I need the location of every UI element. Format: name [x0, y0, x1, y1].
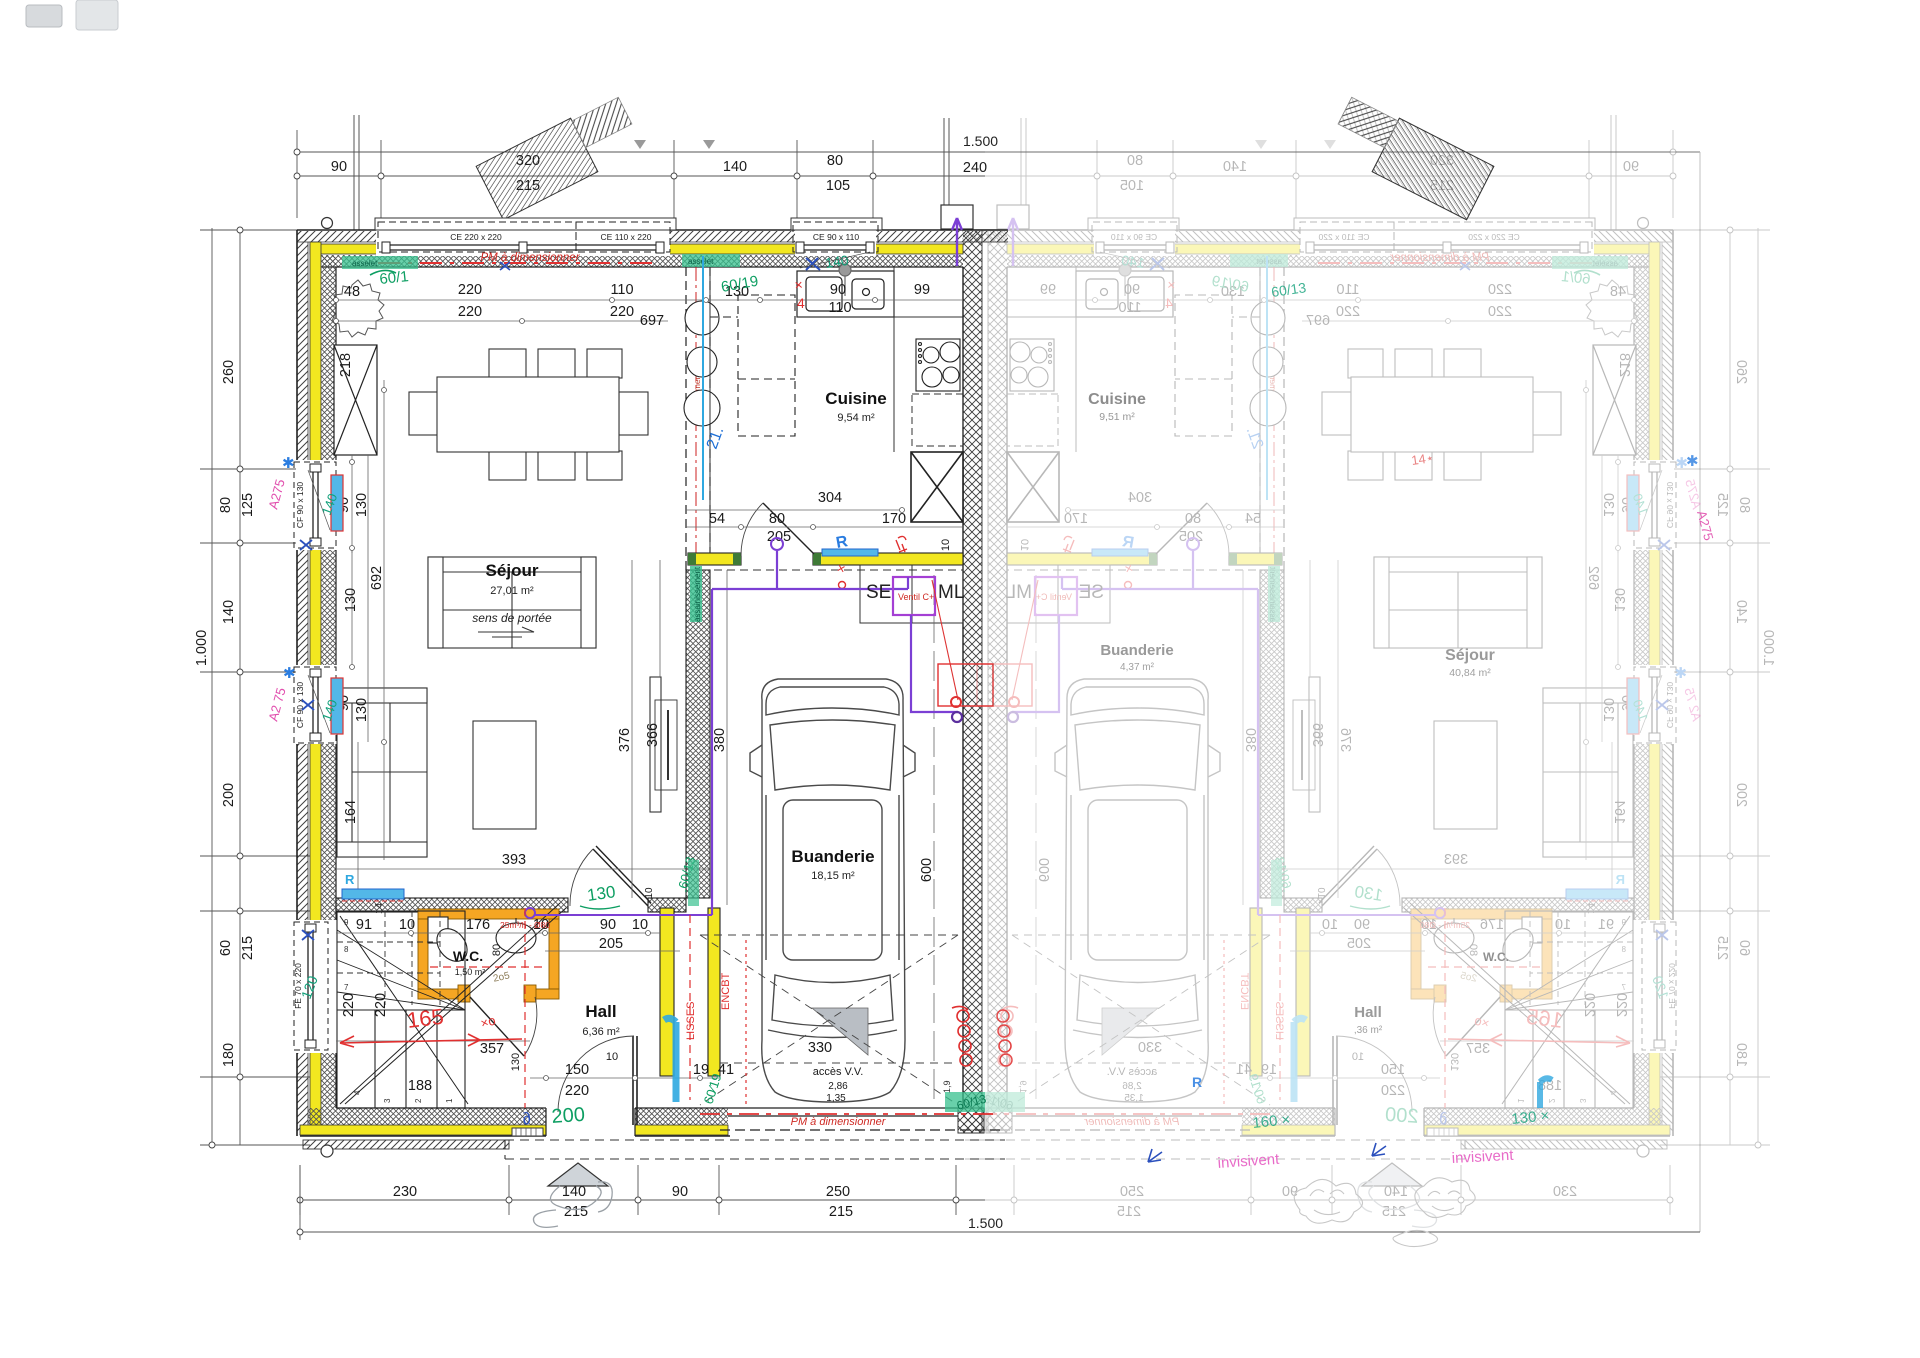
svg-text:2,86: 2,86 [828, 1081, 848, 1092]
svg-text:1,9: 1,9 [942, 1080, 952, 1093]
svg-text:164: 164 [343, 800, 359, 824]
svg-text:CE 90 x 110: CE 90 x 110 [813, 232, 859, 242]
svg-text:220: 220 [565, 1083, 589, 1099]
svg-text:140: 140 [723, 159, 747, 175]
svg-text:3: 3 [383, 1098, 392, 1103]
svg-text:18,15 m²: 18,15 m² [811, 870, 855, 882]
svg-text:90: 90 [331, 159, 347, 175]
svg-text:90: 90 [672, 1184, 688, 1200]
svg-text:14⋆: 14⋆ [1410, 450, 1434, 468]
svg-text:9: 9 [344, 918, 349, 927]
svg-text:170: 170 [882, 511, 906, 527]
svg-text:CE 220 x 220: CE 220 x 220 [450, 232, 502, 242]
svg-text:220: 220 [610, 304, 634, 320]
svg-text:80: 80 [218, 497, 234, 513]
svg-text:Cuisine: Cuisine [825, 389, 886, 408]
svg-text:×: × [794, 276, 804, 293]
svg-text:W.C.: W.C. [453, 948, 483, 964]
svg-text:1.500: 1.500 [968, 1215, 1003, 1231]
svg-text:10: 10 [644, 887, 655, 899]
svg-text:54: 54 [709, 511, 725, 527]
svg-text:600: 600 [919, 858, 935, 882]
svg-text:asselet: asselet [688, 257, 714, 266]
svg-text:220: 220 [458, 304, 482, 320]
svg-text:25m³/h - Ø80: 25m³/h - Ø80 [500, 920, 550, 930]
svg-text:R: R [1192, 1074, 1202, 1090]
svg-text:ML: ML [938, 582, 964, 603]
svg-text:250: 250 [826, 1184, 850, 1200]
svg-text:✱: ✱ [1686, 453, 1699, 470]
svg-text:105: 105 [826, 178, 850, 194]
svg-text:304: 304 [818, 490, 842, 506]
svg-text:188: 188 [408, 1078, 432, 1094]
svg-text:accès V.V.: accès V.V. [813, 1066, 864, 1078]
svg-text:99: 99 [914, 282, 930, 298]
svg-text:205: 205 [599, 936, 623, 952]
svg-text:sens de portée: sens de portée [472, 611, 552, 625]
svg-text:27,01 m²: 27,01 m² [490, 585, 534, 597]
svg-text:CE 110 x 220: CE 110 x 220 [601, 232, 652, 242]
svg-text:Séjour: Séjour [486, 561, 539, 580]
svg-text:200: 200 [221, 783, 237, 807]
svg-text:✱: ✱ [283, 665, 296, 682]
svg-text:130: 130 [354, 698, 370, 722]
svg-text:60/1: 60/1 [379, 268, 410, 288]
svg-text:80: 80 [827, 153, 843, 169]
svg-text:110: 110 [610, 282, 633, 298]
svg-text:220: 220 [458, 282, 482, 298]
svg-text:215: 215 [564, 1204, 588, 1220]
svg-text:10: 10 [632, 917, 648, 933]
svg-text:380: 380 [712, 728, 728, 752]
svg-text:215: 215 [240, 936, 256, 960]
svg-text:4: 4 [797, 295, 805, 311]
svg-text:376: 376 [617, 728, 633, 752]
svg-text:Hall: Hall [1354, 1004, 1382, 1021]
svg-text:14: 14 [374, 902, 385, 914]
svg-text:1,35: 1,35 [826, 1093, 846, 1104]
svg-text:2: 2 [414, 1098, 423, 1103]
svg-text:130: 130 [343, 588, 359, 612]
svg-text:W.C.: W.C. [1483, 950, 1509, 964]
svg-text:6,36 m²: 6,36 m² [582, 1026, 620, 1038]
svg-text:130: 130 [586, 882, 617, 905]
svg-text:220: 220 [341, 993, 357, 1017]
svg-text:CF 90 x 130: CF 90 x 130 [295, 482, 305, 529]
svg-text:230: 230 [393, 1184, 417, 1200]
svg-text:260: 260 [221, 360, 237, 384]
svg-text:220: 220 [373, 993, 389, 1017]
svg-text:130: 130 [510, 1053, 522, 1071]
svg-text:125: 125 [240, 493, 256, 517]
svg-text:140: 140 [221, 600, 237, 624]
svg-text:Buanderie: Buanderie [1100, 642, 1173, 659]
svg-text:1: 1 [445, 1098, 454, 1103]
svg-text:CF 90 x 130: CF 90 x 130 [295, 682, 305, 729]
svg-text:1.500: 1.500 [963, 133, 998, 149]
svg-text:240: 240 [963, 160, 987, 176]
svg-text:393: 393 [502, 852, 526, 868]
svg-text:90: 90 [600, 917, 616, 933]
svg-text:8: 8 [344, 945, 349, 954]
svg-text:4: 4 [353, 1090, 362, 1095]
svg-text:10: 10 [940, 539, 952, 551]
svg-text:9,54 m²: 9,54 m² [837, 412, 875, 424]
svg-text:60: 60 [218, 940, 234, 956]
svg-text:180: 180 [221, 1043, 237, 1067]
svg-text:91: 91 [356, 917, 372, 933]
svg-text:PM à dimensionner: PM à dimensionner [480, 252, 580, 264]
svg-text:10: 10 [399, 917, 415, 933]
svg-text:9,51 m²: 9,51 m² [1099, 411, 1135, 423]
svg-text:330: 330 [808, 1040, 832, 1056]
svg-text:692: 692 [369, 566, 385, 590]
svg-text:19: 19 [693, 1062, 709, 1078]
svg-text:assainissement: assainissement [693, 566, 702, 622]
svg-text:4,37 m²: 4,37 m² [1120, 662, 1155, 673]
svg-text:1,50 m²: 1,50 m² [455, 967, 486, 977]
svg-text:215: 215 [829, 1204, 853, 1220]
svg-text:Buanderie: Buanderie [791, 847, 874, 866]
svg-text:40,84 m²: 40,84 m² [1449, 667, 1491, 679]
svg-text:Cuisine: Cuisine [1088, 391, 1146, 408]
svg-text:110: 110 [828, 300, 851, 316]
svg-text:165: 165 [406, 1004, 445, 1033]
svg-text:Hall: Hall [585, 1002, 616, 1021]
svg-text:1.000: 1.000 [194, 630, 210, 666]
svg-text:,36 m²: ,36 m² [1354, 1025, 1383, 1036]
svg-text:176: 176 [466, 917, 490, 933]
svg-text:366: 366 [645, 723, 661, 747]
svg-text:80: 80 [491, 944, 503, 956]
svg-text:150: 150 [565, 1062, 589, 1078]
svg-text:80: 80 [769, 511, 785, 527]
svg-text:48: 48 [344, 284, 360, 300]
svg-text:90: 90 [830, 282, 846, 298]
svg-text:PM à dimensionner: PM à dimensionner [791, 1116, 887, 1128]
svg-text:7: 7 [344, 983, 349, 992]
svg-text:✱: ✱ [282, 455, 295, 472]
svg-text:asselet: asselet [352, 259, 378, 268]
svg-text:Ventil C+: Ventil C+ [898, 592, 934, 602]
svg-text:357: 357 [480, 1041, 504, 1057]
svg-text:R: R [345, 872, 355, 887]
svg-text:LISSES: LISSES [685, 1001, 697, 1040]
svg-text:Séjour: Séjour [1445, 647, 1495, 664]
svg-text:ENCBT: ENCBT [720, 972, 732, 1010]
svg-text:10: 10 [606, 1051, 618, 1063]
svg-text:218: 218 [338, 353, 354, 377]
svg-text:SE: SE [866, 582, 891, 603]
svg-text:invisivent: invisivent [1451, 1147, 1514, 1167]
svg-text:200: 200 [551, 1104, 586, 1128]
svg-text:697: 697 [640, 313, 664, 329]
svg-text:130: 130 [354, 493, 370, 517]
